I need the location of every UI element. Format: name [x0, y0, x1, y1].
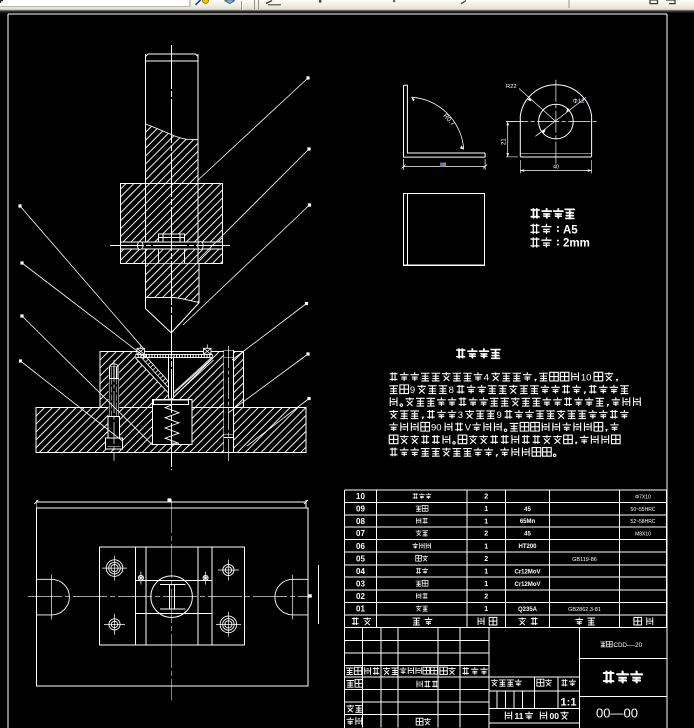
svg-text:R22: R22: [506, 84, 517, 90]
svg-text:Φ12: Φ12: [573, 99, 585, 105]
svg-text:10: 10: [356, 492, 365, 501]
svg-text:00: 00: [550, 711, 560, 721]
svg-text:HT200: HT200: [518, 544, 537, 550]
svg-text:2: 2: [484, 556, 488, 563]
svg-text:21: 21: [502, 138, 508, 145]
svg-text:1: 1: [484, 581, 488, 588]
svg-text:52~58HRC: 52~58HRC: [631, 519, 656, 525]
svg-text:11: 11: [515, 711, 524, 721]
svg-text:45: 45: [524, 532, 531, 538]
svg-text:Q235A: Q235A: [518, 607, 538, 613]
svg-text:A5: A5: [563, 224, 578, 236]
svg-text:1: 1: [484, 606, 488, 613]
svg-text:9: 9: [410, 385, 415, 396]
svg-text:Cr12MoV: Cr12MoV: [514, 569, 540, 575]
svg-text:1: 1: [484, 543, 488, 550]
svg-text:M8X10: M8X10: [635, 531, 651, 537]
svg-text:Cr12MoV: Cr12MoV: [514, 582, 540, 588]
svg-text:2: 2: [484, 531, 488, 538]
svg-text:45: 45: [524, 507, 531, 513]
svg-text:2mm: 2mm: [563, 238, 590, 250]
svg-text:Φ7X10: Φ7X10: [635, 494, 651, 500]
svg-text:GB2862.3-81: GB2862.3-81: [568, 607, 601, 613]
svg-text:1: 1: [484, 506, 488, 513]
svg-text:05: 05: [356, 555, 365, 564]
svg-text:CDD—-20: CDD—-20: [614, 642, 643, 649]
svg-text:04: 04: [356, 567, 365, 576]
svg-text:1: 1: [484, 569, 488, 576]
svg-text:08: 08: [356, 517, 365, 526]
svg-text:1:1: 1:1: [561, 697, 577, 709]
svg-text:2: 2: [484, 594, 488, 601]
svg-text:4: 4: [484, 372, 489, 383]
svg-text:3: 3: [458, 410, 463, 421]
svg-text:50~55HRC: 50~55HRC: [631, 507, 656, 513]
svg-text:8: 8: [449, 385, 454, 396]
svg-text:40: 40: [553, 164, 559, 170]
svg-text:2: 2: [484, 494, 488, 501]
svg-text:1: 1: [484, 518, 488, 525]
svg-text:06: 06: [356, 542, 365, 551]
svg-text:10: 10: [581, 372, 592, 383]
svg-text:V: V: [465, 423, 472, 434]
svg-text:65Mn: 65Mn: [520, 519, 536, 525]
svg-text:02: 02: [356, 592, 365, 601]
svg-text:GB119-86: GB119-86: [572, 557, 597, 563]
svg-text:07: 07: [356, 529, 365, 538]
svg-text:09: 09: [356, 505, 365, 514]
svg-text:03: 03: [356, 580, 365, 589]
svg-text:01: 01: [356, 605, 365, 614]
svg-text:00—00: 00—00: [596, 706, 638, 721]
svg-text:90: 90: [431, 423, 442, 434]
svg-text:9: 9: [496, 410, 501, 421]
